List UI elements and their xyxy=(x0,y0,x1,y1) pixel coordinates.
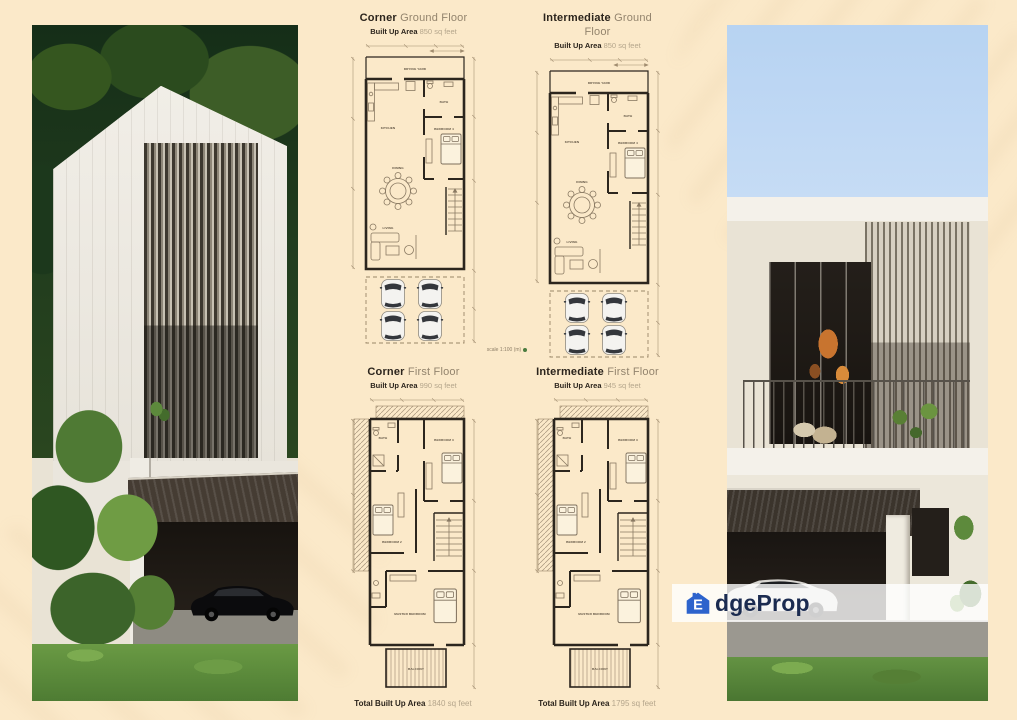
svg-text:DRYING YARD: DRYING YARD xyxy=(588,81,611,85)
total-area-corner: Total Built Up Area 1840 sq feet xyxy=(313,699,513,708)
svg-text:E: E xyxy=(693,598,703,614)
area-label: Built Up Area xyxy=(554,41,601,50)
plan-corner-first: Corner First Floor Built Up Area 990 sq … xyxy=(346,366,481,693)
svg-text:BALCONY: BALCONY xyxy=(408,667,425,671)
driveway xyxy=(727,620,988,662)
plan-title-intermediate-first: Intermediate First Floor Built Up Area 9… xyxy=(530,366,665,390)
floorplan-drawing-corner-first: BATH BEDROOM 3 BEDROOM 2 MASTER BEDROOM … xyxy=(346,393,481,693)
svg-text:BATH: BATH xyxy=(379,436,388,440)
edgeprop-logo-house-icon: E xyxy=(684,590,712,616)
plan-title-corner-ground: Corner Ground Floor Built Up Area 850 sq… xyxy=(346,12,481,36)
svg-text:DRYING YARD: DRYING YARD xyxy=(404,67,427,71)
svg-text:KITCHEN: KITCHEN xyxy=(565,140,580,144)
total-area-label: Total Built Up Area xyxy=(354,699,425,708)
svg-text:BEDROOM 2: BEDROOM 2 xyxy=(566,540,586,544)
svg-text:DINING: DINING xyxy=(392,166,404,170)
balcony-plants xyxy=(878,393,951,454)
edgeprop-watermark: E dgeProp xyxy=(672,584,988,622)
area-value: 990 sq feet xyxy=(420,381,457,390)
svg-text:BATH: BATH xyxy=(440,100,449,104)
page-background: Corner Ground Floor Built Up Area 850 sq… xyxy=(0,0,1017,720)
svg-text:BEDROOM 4: BEDROOM 4 xyxy=(618,141,638,145)
plan-type-label: Intermediate xyxy=(536,366,604,378)
svg-text:BEDROOM 4: BEDROOM 4 xyxy=(434,127,454,131)
north-icon xyxy=(523,348,527,352)
area-label: Built Up Area xyxy=(370,27,417,36)
scale-note-text: scale 1:100 (m) xyxy=(487,347,521,353)
svg-text:MASTER BEDROOM: MASTER BEDROOM xyxy=(578,612,610,616)
floorplan-drawing-corner-ground: DRYING YARD KITCHEN BATH BEDROOM 4 DININ… xyxy=(346,39,481,349)
plan-type-label: Corner xyxy=(360,12,397,24)
area-value: 850 sq feet xyxy=(420,27,457,36)
area-value: 850 sq feet xyxy=(604,41,641,50)
plan-corner-ground: Corner Ground Floor Built Up Area 850 sq… xyxy=(346,12,481,349)
plan-floor-label: First Floor xyxy=(408,366,460,378)
svg-text:LIVING: LIVING xyxy=(567,240,578,244)
area-label: Built Up Area xyxy=(554,381,601,390)
area-label: Built Up Area xyxy=(370,381,417,390)
svg-text:BATH: BATH xyxy=(563,436,572,440)
total-area-value: 1795 sq feet xyxy=(612,699,656,708)
front-tree-foliage xyxy=(32,349,208,673)
plan-title-corner-first: Corner First Floor Built Up Area 990 sq … xyxy=(346,366,481,390)
edgeprop-logo-text: dgeProp xyxy=(715,590,810,617)
svg-text:KITCHEN: KITCHEN xyxy=(381,126,396,130)
svg-text:BATH: BATH xyxy=(624,114,633,118)
floorplan-drawing-intermediate-ground: DRYING YARD KITCHEN BATH BEDROOM 4 DININ… xyxy=(530,53,665,363)
house-photo-corner-unit xyxy=(32,25,298,701)
total-area-intermediate: Total Built Up Area 1795 sq feet xyxy=(497,699,697,708)
total-area-value: 1840 sq feet xyxy=(428,699,472,708)
plan-type-label: Intermediate xyxy=(543,12,611,24)
svg-text:DINING: DINING xyxy=(576,180,588,184)
svg-text:BALCONY: BALCONY xyxy=(592,667,609,671)
floorplan-drawing-intermediate-first: BATH BEDROOM 3 BEDROOM 2 MASTER BEDROOM … xyxy=(530,393,665,693)
svg-text:LIVING: LIVING xyxy=(383,226,394,230)
plan-intermediate-ground: Intermediate Ground Floor Built Up Area … xyxy=(530,12,665,363)
plan-title-intermediate-ground: Intermediate Ground Floor Built Up Area … xyxy=(530,12,665,50)
plan-intermediate-first: Intermediate First Floor Built Up Area 9… xyxy=(530,366,665,693)
svg-text:BEDROOM 3: BEDROOM 3 xyxy=(434,438,454,442)
front-lawn xyxy=(32,644,298,701)
plan-floor-label: First Floor xyxy=(607,366,659,378)
total-area-label: Total Built Up Area xyxy=(538,699,609,708)
sky xyxy=(727,25,988,201)
svg-text:BEDROOM 2: BEDROOM 2 xyxy=(382,540,402,544)
front-lawn xyxy=(727,657,988,701)
svg-text:MASTER BEDROOM: MASTER BEDROOM xyxy=(394,612,426,616)
plan-type-label: Corner xyxy=(367,366,404,378)
area-value: 945 sq feet xyxy=(604,381,641,390)
scale-note: scale 1:100 (m) xyxy=(468,347,546,353)
svg-text:BEDROOM 3: BEDROOM 3 xyxy=(618,438,638,442)
plan-floor-label: Ground Floor xyxy=(400,12,467,24)
